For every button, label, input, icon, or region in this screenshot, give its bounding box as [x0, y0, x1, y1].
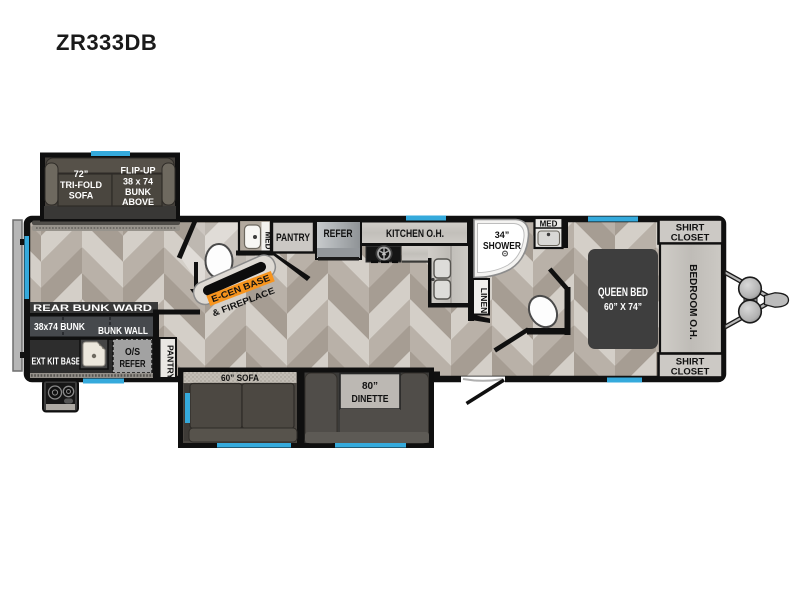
svg-text:72”: 72”	[74, 169, 89, 179]
svg-text:BEDROOM O.H.: BEDROOM O.H.	[687, 264, 698, 340]
svg-text:O/S: O/S	[125, 347, 140, 358]
svg-text:REFER: REFER	[324, 228, 353, 240]
svg-text:SOFA: SOFA	[69, 191, 94, 201]
svg-text:KITCHEN O.H.: KITCHEN O.H.	[386, 228, 444, 240]
svg-text:QUEEN BED: QUEEN BED	[598, 287, 648, 299]
svg-text:PANTRY: PANTRY	[166, 345, 176, 379]
svg-text:CLOSET: CLOSET	[671, 233, 710, 244]
svg-text:SHOWER: SHOWER	[483, 241, 522, 252]
svg-text:BUNK: BUNK	[125, 187, 151, 197]
svg-text:PANTRY: PANTRY	[276, 232, 311, 244]
svg-text:38 x 74: 38 x 74	[123, 177, 153, 187]
svg-text:TRI-FOLD: TRI-FOLD	[60, 180, 102, 190]
svg-text:80”: 80”	[362, 381, 378, 392]
svg-text:DINETTE: DINETTE	[352, 394, 389, 405]
svg-text:60” X 74”: 60” X 74”	[604, 302, 642, 313]
svg-text:MED: MED	[540, 220, 558, 229]
svg-text:CLOSET: CLOSET	[671, 367, 710, 378]
svg-text:EXT KIT BASE: EXT KIT BASE	[32, 357, 81, 368]
svg-text:34”: 34”	[495, 230, 510, 240]
svg-text:ZR333DB: ZR333DB	[56, 30, 157, 55]
svg-text:60” SOFA: 60” SOFA	[221, 373, 259, 384]
svg-text:38x74 BUNK: 38x74 BUNK	[34, 322, 86, 333]
svg-text:ABOVE: ABOVE	[122, 197, 154, 207]
svg-text:REAR BUNK WARD: REAR BUNK WARD	[33, 303, 152, 314]
svg-text:LINEN: LINEN	[479, 288, 489, 314]
svg-text:BUNK WALL: BUNK WALL	[98, 326, 148, 337]
svg-text:FLIP-UP: FLIP-UP	[121, 166, 156, 176]
svg-text:REFER: REFER	[120, 359, 147, 370]
